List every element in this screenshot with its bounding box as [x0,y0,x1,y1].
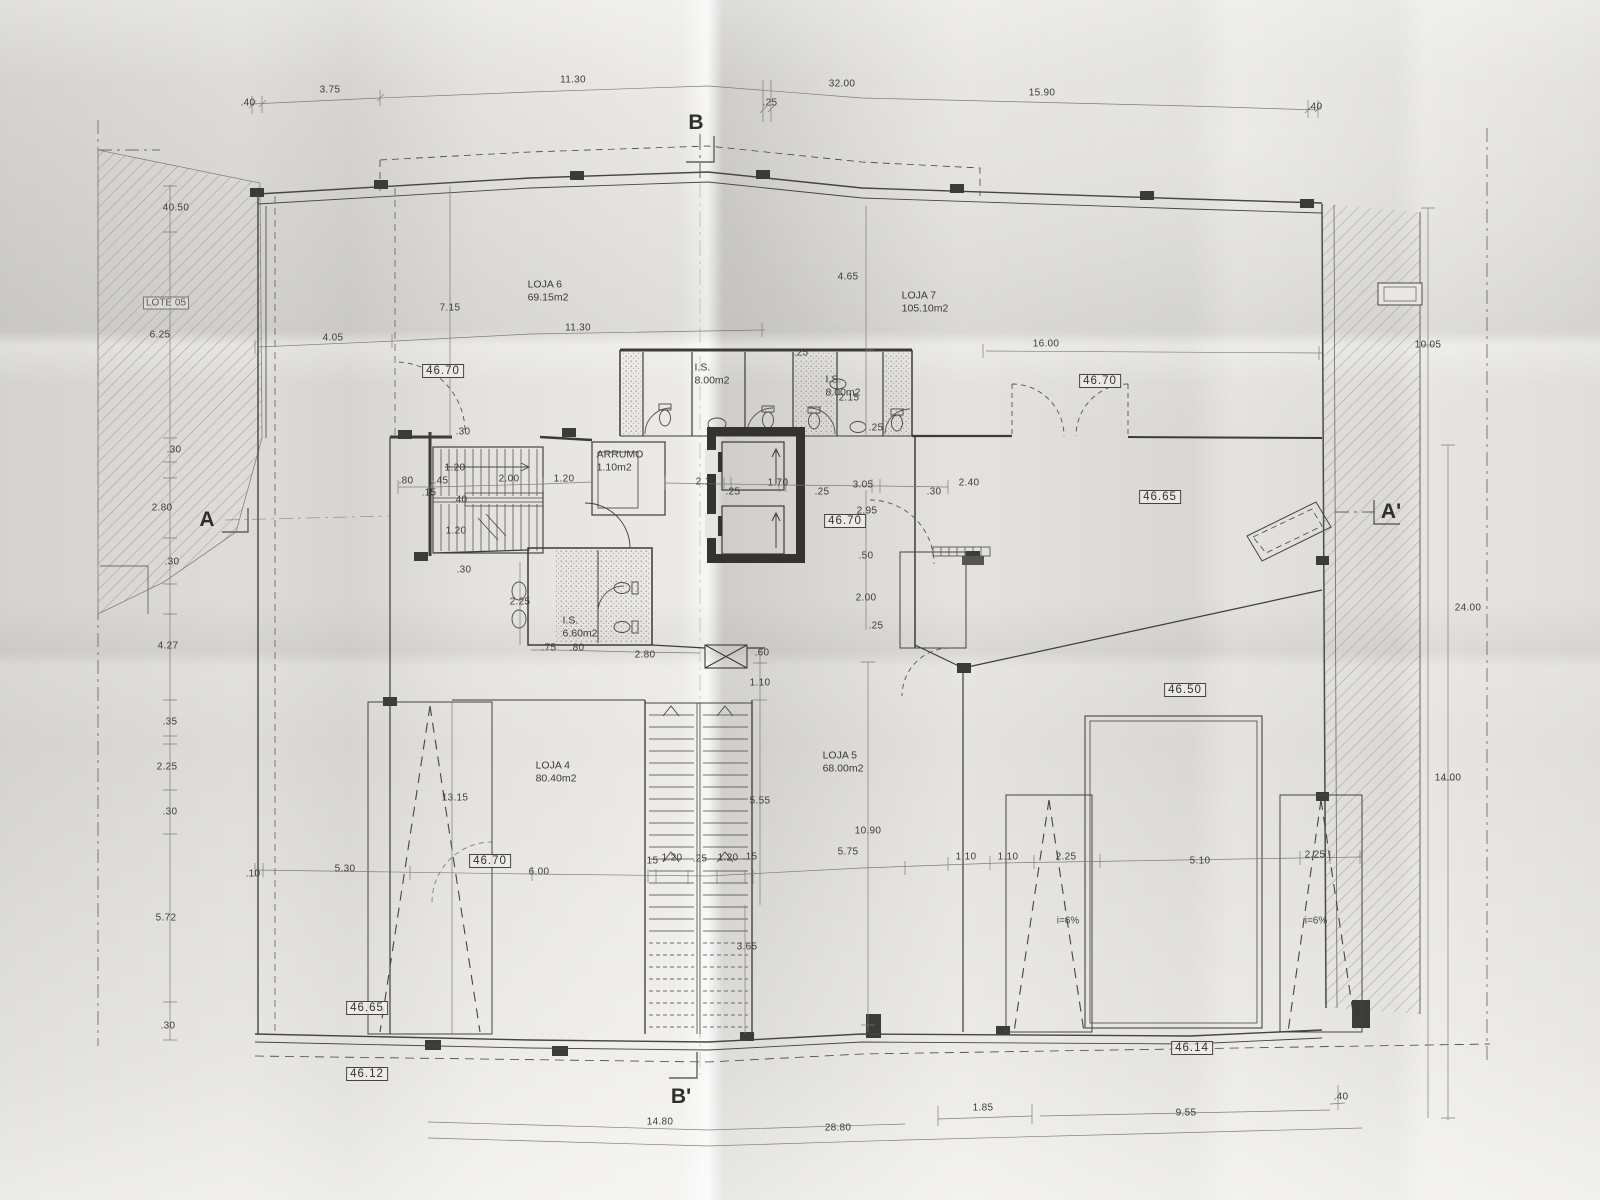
dimension-label: 28.80 [825,1123,852,1134]
dimension-label: 1.20 [662,853,683,864]
room-label: LOJA 7105.10m2 [902,289,949,314]
dimension-label: 16.00 [1033,339,1060,350]
ramp-slope-label: i=6% [1057,916,1080,927]
dimension-label: .30 [457,565,472,576]
dimension-label: 5.10 [1190,856,1211,867]
dimension-label: .30 [165,557,180,568]
dimension-label: 7.15 [440,303,461,314]
dimension-label: .50 [859,551,874,562]
dimension-label: .80 [570,643,585,654]
dimension-label: .30 [927,487,942,498]
dimension-label: 2.80 [635,650,656,661]
blueprint-photo: .403.7511.3032.00.2515.90.404.057.1511.3… [0,0,1600,1200]
dimension-label: .40 [241,98,256,109]
dimension-label: 9.55 [1176,1108,1197,1119]
dimension-label: .15 [743,852,758,863]
dimension-label: 2.25 [1056,852,1077,863]
dimension-label: .15 [422,488,437,499]
dimension-label: 5.30 [335,864,356,875]
room-label: ARRUMO1.10m2 [597,448,644,473]
level-marker: 46.70 [469,854,511,868]
zone-label: LOTE 05 [143,297,189,310]
dimension-label: .40 [1334,1092,1349,1103]
section-marker: A' [1381,500,1401,524]
dimension-label: 2.00 [856,593,877,604]
dimension-label: 6.00 [529,867,550,878]
dimension-label: .25 [794,348,809,359]
level-marker: 46.50 [1164,683,1206,697]
dimension-label: 4.27 [158,641,179,652]
dimension-label: 5.55 [750,796,771,807]
dimension-label: .25 [693,854,708,865]
dimension-label: 11.30 [560,75,586,86]
section-marker: B' [671,1085,691,1109]
level-marker: 46.65 [346,1001,388,1015]
dimension-label: 1.10 [750,678,771,689]
level-marker: 46.70 [1079,374,1121,388]
dimension-label: 2.25 [1305,850,1326,861]
dimension-label: 2.25 [510,597,531,608]
dimension-label: 1.85 [973,1103,994,1114]
dimension-label: 5.75 [838,847,859,858]
dimension-label: .25 [869,423,884,434]
dimension-label: 32.00 [829,79,856,90]
level-marker: 46.65 [1139,490,1181,504]
dimension-label: 3.75 [320,85,341,96]
dimension-label: 1.10 [956,852,977,863]
dimension-label: 13.15 [442,793,469,804]
dimension-label: 10.05 [1415,340,1442,351]
dimension-label: 2.25 [157,762,178,773]
dimension-label: .30 [456,427,471,438]
dimension-label: 1.70 [768,478,789,489]
dimension-label: 2.40 [959,478,980,489]
dimension-label: 1.20 [446,526,467,537]
dimension-label: .40 [1308,102,1323,113]
dimension-label: .25 [869,621,884,632]
dimension-label: .30 [163,807,178,818]
room-label: LOJA 480.40m2 [536,759,577,784]
dimension-label: .35 [163,717,178,728]
dimension-label: .15 [644,856,659,867]
section-marker: A [199,508,214,532]
dimension-label: .60 [755,648,770,659]
level-marker: 46.12 [346,1067,388,1081]
dimension-label: 1.20 [445,463,466,474]
room-label: LOJA 568.00m2 [823,749,864,774]
dimension-label: 24.00 [1455,603,1482,614]
dimension-label: 5.72 [156,913,177,924]
dimension-label: 4.05 [323,333,344,344]
dimension-label: .30 [167,445,182,456]
section-marker: B [688,111,703,135]
room-label: I.S.8.00m2 [825,373,860,398]
plan-labels: .403.7511.3032.00.2515.90.404.057.1511.3… [0,0,1600,1200]
dimension-label: .10 [246,869,261,880]
dimension-label: .75 [542,643,557,654]
dimension-label: 15.90 [1029,88,1056,99]
dimension-label: 1.20 [718,853,739,864]
dimension-label: .25 [726,487,741,498]
ramp-slope-label: i=6% [1305,916,1328,927]
dimension-label: .25 [763,98,778,109]
dimension-label: 2.00 [499,474,520,485]
dimension-label: 1.20 [554,474,575,485]
dimension-label: 2.10 [696,477,717,488]
dimension-label: 1.45 [428,476,449,487]
dimension-label: 4.65 [838,272,859,283]
dimension-label: .30 [161,1021,176,1032]
dimension-label: 40.50 [163,203,190,214]
room-label: LOJA 669.15m2 [528,278,569,303]
dimension-label: 1.10 [998,852,1019,863]
level-marker: 46.70 [824,514,866,528]
room-label: I.S.6.60m2 [562,614,597,639]
dimension-label: 10.90 [855,826,882,837]
dimension-label: 14.00 [1435,773,1462,784]
dimension-label: 3.05 [853,480,874,491]
level-marker: 46.14 [1171,1041,1213,1055]
dimension-label: 3.65 [737,942,758,953]
dimension-label: 2.80 [152,503,173,514]
dimension-label: .40 [453,495,468,506]
dimension-label: .25 [815,487,830,498]
dimension-label: .80 [399,476,414,487]
dimension-label: 11.30 [565,323,591,334]
level-marker: 46.70 [422,364,464,378]
room-label: I.S.8.00m2 [694,361,729,386]
dimension-label: 14.80 [647,1117,674,1128]
dimension-label: 6.25 [150,330,171,341]
